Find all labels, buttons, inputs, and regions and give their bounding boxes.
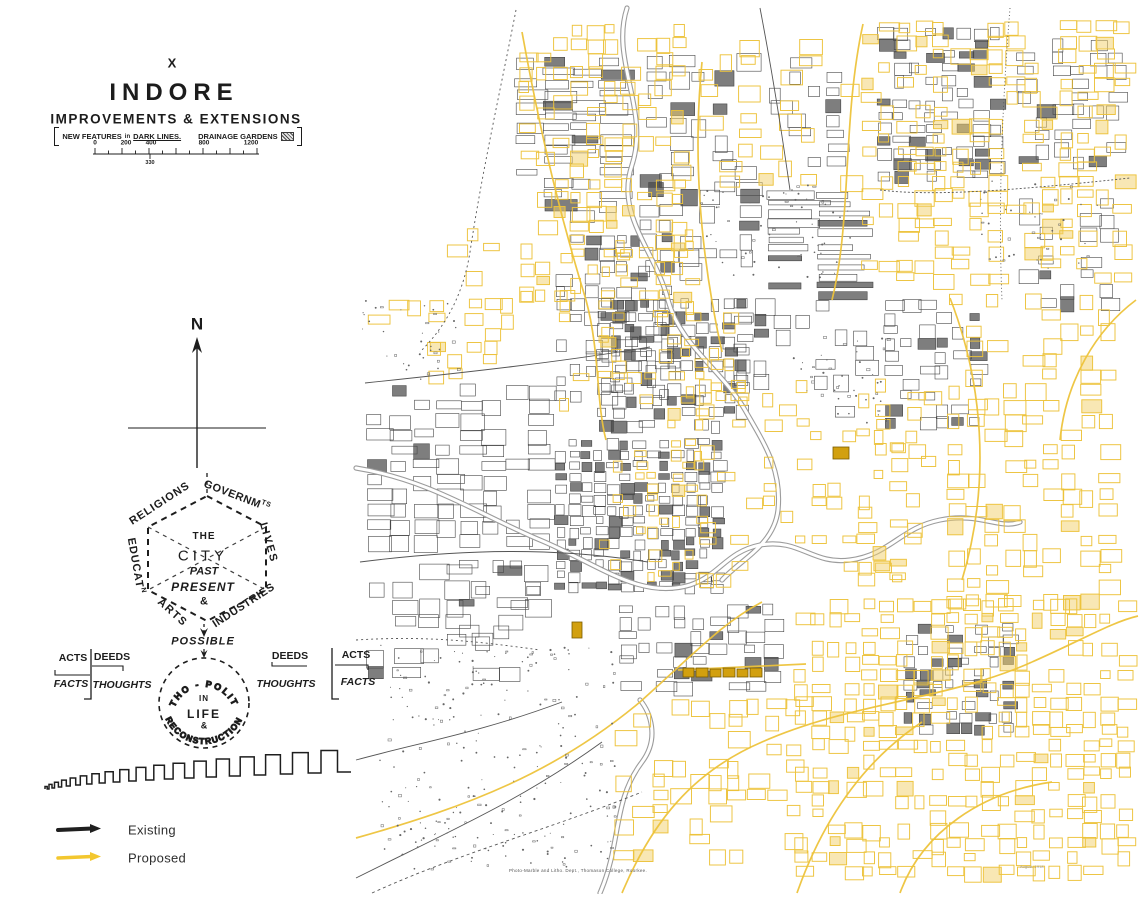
scale-sub-label: 330	[145, 160, 154, 166]
scale-tick-400: 400	[146, 140, 157, 147]
circle-ampersand: &	[201, 722, 208, 731]
plate-number: X	[168, 57, 177, 70]
center-ampersand: &	[200, 597, 208, 608]
right-matrix-facts: FACTS	[341, 677, 375, 688]
map-key-note: NEW FEATURES in DARK LINES. DRAINAGE GAR…	[42, 127, 314, 146]
right-matrix-deeds: DEEDS	[272, 651, 308, 662]
imprint-caption: Photo-Marble and Litho. Dept., Thomason …	[509, 868, 647, 873]
note-new-features: NEW FEATURES	[62, 132, 121, 141]
left-matrix-thoughts: THOUGHTS	[93, 680, 152, 691]
center-the: THE	[193, 532, 216, 542]
city-map	[356, 8, 1138, 893]
page-subtitle: IMPROVEMENTS & EXTENSIONS	[50, 112, 301, 126]
right-matrix-axis	[332, 648, 339, 699]
right-matrix-bracket-1	[272, 662, 307, 666]
bracket-right	[297, 127, 302, 146]
right-matrix-acts: ACTS	[342, 650, 371, 661]
note-dark-lines: DARK LINES.	[133, 132, 181, 141]
scale-tick-0: 0	[93, 140, 97, 147]
scale-tick-200: 200	[121, 140, 132, 147]
center-present: PRESENT	[171, 581, 235, 593]
edition-caption: August, 1918	[1020, 864, 1044, 869]
scale-tick-1200: 1200	[244, 140, 258, 147]
left-matrix-acts: ACTS	[59, 653, 88, 664]
scale-and-legend-graphics	[45, 148, 351, 861]
circle-life: LIFE	[187, 708, 221, 720]
circle-in: IN	[199, 695, 209, 703]
center-past: PAST	[190, 567, 219, 578]
drainage-hatch-icon	[281, 132, 294, 141]
page-title: INDORE	[109, 81, 238, 105]
legend-existing-label: Existing	[128, 823, 176, 838]
legend-proposed-label: Proposed	[128, 851, 186, 866]
left-matrix-bracket-1	[92, 666, 123, 671]
note-drainage-gardens: DRAINAGE GARDENS	[198, 132, 278, 141]
left-matrix-deeds: DEEDS	[94, 652, 130, 663]
scale-tick-800: 800	[199, 140, 210, 147]
left-matrix-bracket-2	[55, 670, 90, 675]
possible-label: POSSIBLE	[171, 637, 235, 648]
bracket-left	[54, 127, 59, 146]
compass-north-label: N	[191, 316, 203, 333]
indore-plate: ETHO - POLITY RECONSTRUCTION X INDORE IM…	[0, 0, 1140, 909]
center-city: CITY	[178, 549, 228, 564]
left-matrix-facts: FACTS	[54, 679, 88, 690]
right-matrix-bracket-2	[335, 665, 368, 670]
right-matrix-thoughts: THOUGHTS	[257, 679, 316, 690]
